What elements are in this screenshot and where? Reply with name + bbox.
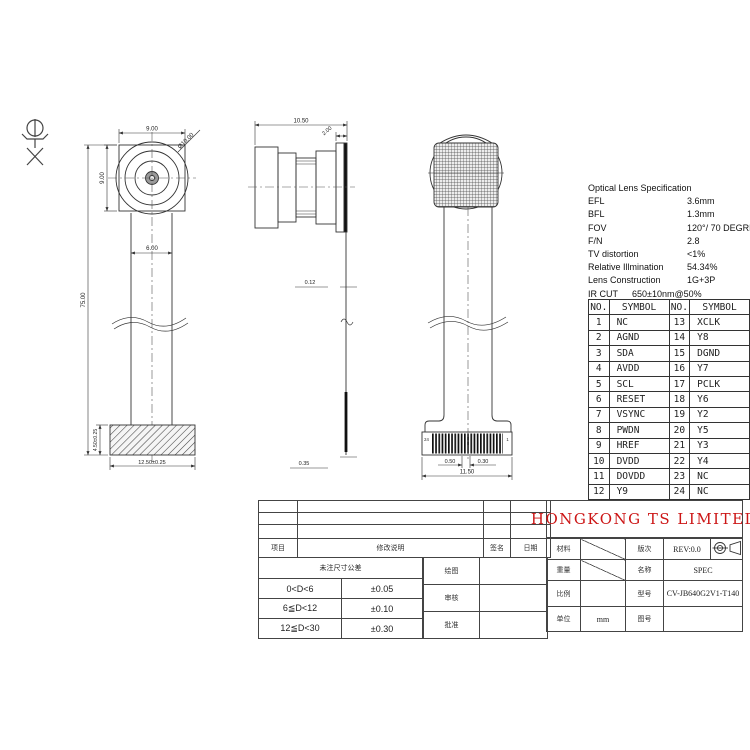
table-row: 9HREF21Y3 [589,438,750,453]
projection-symbol-icon [712,539,742,557]
rear-view-drawing: 24 1 0.50 0.30 11.50 [400,110,530,490]
table-row: 未注尺寸公差 [259,558,423,579]
table-row [259,501,551,513]
tolerance-table: 未注尺寸公差 0<D<6 ±0.05 6≦D<12 ±0.10 12≦D<30 … [258,557,423,639]
table-row: 材料 版次 REV:0.0 [547,539,743,560]
table-row: 0<D<6 ±0.05 [259,579,423,599]
table-row: 3SDA15DGND [589,346,750,361]
pin-symbol-table: NO. SYMBOL NO. SYMBOL 1NC13XCLK 2AGND14Y… [588,299,750,500]
dim-label: 0.35 [299,461,310,467]
table-row [259,513,551,525]
rear-cable [422,207,512,455]
table-row: 单位 mm 图号 [547,607,743,632]
dim-label: 0.12 [305,280,316,286]
spec-row: TV distortion <1% [588,248,748,261]
side-fpc [341,232,353,455]
table-row: 审核 [424,585,548,612]
dim-label: 75.00 [81,292,87,308]
table-row: 12≦D<30 ±0.30 [259,619,423,639]
dim-label: 0.50 [445,459,456,465]
title-block-table: 材料 版次 REV:0.0 重量 [546,538,743,632]
approval-table: 绘图 审核 批准 [423,557,548,639]
dim-label: 10.50 [293,119,309,125]
dim-label: 0.30 [478,459,489,465]
spec-row: Lens Construction 1G+3P [588,274,748,287]
company-name: HONGKONG TS LIMITED [546,500,743,538]
table-row: 4AVDD16Y7 [589,361,750,376]
dim-label: 2.00 [321,125,333,136]
dim-label: 6.00 [146,246,158,252]
person-icon [18,114,58,174]
pin-number-label: 1 [506,437,509,442]
dim-label: Ø10.00 [177,132,196,151]
spec-row: EFL 3.6mm [588,195,748,208]
title-block: HONGKONG TS LIMITED 材料 版次 REV:0.0 [546,500,743,632]
table-row: 8PWDN20Y5 [589,423,750,438]
spec-row: F/N 2.8 [588,235,748,248]
table-row: 批准 [424,612,548,639]
table-row: 2AGND14Y8 [589,330,750,345]
side-dim-labels: 10.50 2.00 0.12 0.35 [293,119,333,468]
diagonal-cell [581,539,626,560]
pin-table-header-row: NO. SYMBOL NO. SYMBOL [589,300,750,315]
dim-label: 9.00 [100,172,106,184]
table-row: 11DOVDD23NC [589,469,750,484]
drawing-sheet: 9.00 9.00 Ø10.00 6.00 75.00 4.50±0.25 12… [0,0,750,750]
dim-label: 11.50 [460,470,475,476]
table-row: 1NC13XCLK [589,315,750,330]
tolerance-approval-block: 未注尺寸公差 0<D<6 ±0.05 6≦D<12 ±0.10 12≦D<30 … [258,557,548,639]
rear-dimensions [422,456,512,480]
side-profile [255,143,347,232]
dim-label: 12.50±0.25 [138,460,166,466]
diagonal-cell [581,560,626,581]
side-dimensions [255,121,357,468]
revision-header-row: 项目 修改说明 签名 日期 [259,539,551,558]
projection-symbol-cell [711,539,743,560]
spec-row: FOV 120°/ 70 DEGREE [588,222,748,235]
table-row: 比例 型号 CV-JB640G2V1-T140 [547,581,743,607]
table-row: 6RESET18Y6 [589,392,750,407]
rear-lens [428,135,504,209]
revision-table: 项目 修改说明 签名 日期 [258,500,551,558]
table-row: 6≦D<12 ±0.10 [259,599,423,619]
spec-title: Optical Lens Specification [588,182,748,195]
table-row: 7VSYNC19Y2 [589,407,750,422]
optical-spec-block: Optical Lens Specification EFL 3.6mm BFL… [588,182,748,301]
dim-label: 4.50±0.25 [93,429,99,451]
dim-label: 9.00 [146,127,158,133]
table-row [259,525,551,539]
table-row: 12Y924NC [589,484,750,499]
front-view-drawing: 9.00 9.00 Ø10.00 6.00 75.00 4.50±0.25 12… [60,110,220,490]
spec-row: BFL 1.3mm [588,208,748,221]
side-view-drawing: 10.50 2.00 0.12 0.35 [240,110,360,490]
spec-row: Relative Illmination 54.34% [588,261,748,274]
table-row: 5SCL17PCLK [589,376,750,391]
front-break-lines [112,317,188,331]
table-row: 10DVDD22Y4 [589,453,750,468]
pin-number-label: 24 [424,437,429,442]
table-row: 重量 名称 SPEC [547,560,743,581]
table-row: 绘图 [424,558,548,585]
